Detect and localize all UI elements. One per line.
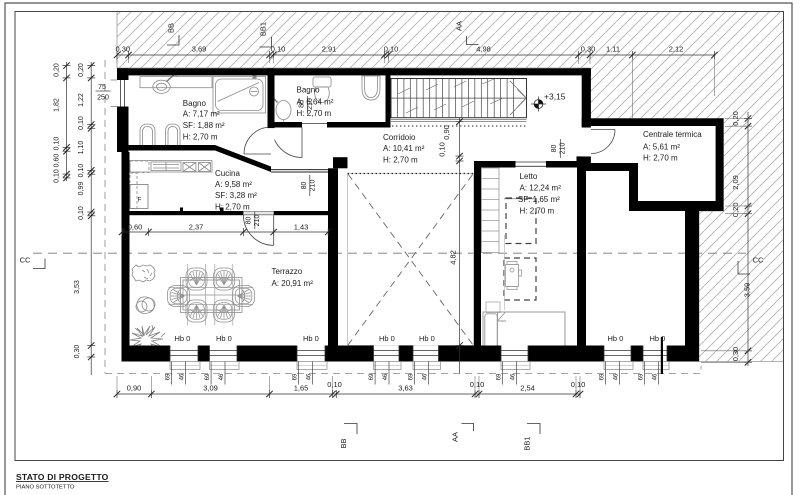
svg-text:Hb 0: Hb 0 <box>608 334 624 343</box>
svg-text:0,30: 0,30 <box>731 347 740 362</box>
svg-text:AA: AA <box>455 21 464 31</box>
svg-text:F: F <box>138 197 142 204</box>
svg-text:80: 80 <box>551 145 558 153</box>
svg-text:0,30: 0,30 <box>115 45 130 54</box>
svg-text:3,63: 3,63 <box>398 384 413 393</box>
svg-text:Cucina: Cucina <box>215 169 240 178</box>
svg-text:0,20: 0,20 <box>78 63 85 77</box>
svg-text:3,69: 3,69 <box>192 45 207 54</box>
svg-text:3,53: 3,53 <box>74 280 81 294</box>
svg-text:0,90: 0,90 <box>442 125 451 140</box>
svg-text:CC: CC <box>20 256 31 265</box>
svg-text:Corridoio: Corridoio <box>383 133 416 142</box>
svg-text:H: 2,70 m: H: 2,70 m <box>383 156 418 165</box>
svg-text:46: 46 <box>307 373 313 380</box>
svg-text:69: 69 <box>600 373 606 380</box>
svg-text:H: 2,70 m: H: 2,70 m <box>520 207 555 216</box>
svg-text:+3,15: +3,15 <box>544 92 566 102</box>
svg-text:69: 69 <box>293 373 299 380</box>
svg-text:3,09: 3,09 <box>203 384 218 393</box>
svg-text:250: 250 <box>97 95 109 102</box>
svg-text:Hb 0: Hb 0 <box>216 334 232 343</box>
svg-text:0,10: 0,10 <box>571 380 586 389</box>
svg-text:0,10: 0,10 <box>438 142 447 157</box>
svg-text:H: 2,70 m: H: 2,70 m <box>183 133 218 142</box>
svg-text:69: 69 <box>205 373 211 380</box>
svg-text:69: 69 <box>369 373 375 380</box>
svg-text:0,10: 0,10 <box>54 137 61 151</box>
svg-text:69: 69 <box>166 373 172 380</box>
svg-text:SF: 3,28 m²: SF: 3,28 m² <box>215 191 257 200</box>
svg-text:2,54: 2,54 <box>520 384 535 393</box>
svg-text:A: 9,58 m²: A: 9,58 m² <box>215 180 252 189</box>
svg-text:SF: 1,88 m²: SF: 1,88 m² <box>183 121 225 130</box>
svg-text:0,60: 0,60 <box>128 223 143 232</box>
svg-text:Hb 0: Hb 0 <box>650 334 666 343</box>
svg-text:46: 46 <box>614 373 620 380</box>
svg-text:69: 69 <box>497 373 503 380</box>
svg-text:BB1: BB1 <box>523 436 532 450</box>
svg-text:2,09: 2,09 <box>731 175 740 190</box>
svg-text:4,98: 4,98 <box>476 45 491 54</box>
svg-text:Bagno: Bagno <box>183 99 207 108</box>
svg-text:1,43: 1,43 <box>294 223 309 232</box>
svg-text:AA: AA <box>451 432 460 442</box>
svg-text:0,30: 0,30 <box>581 45 596 54</box>
svg-text:46: 46 <box>383 373 389 380</box>
svg-text:H: 2,70 m: H: 2,70 m <box>297 109 332 118</box>
svg-text:46: 46 <box>511 373 517 380</box>
svg-text:0,10: 0,10 <box>78 206 85 220</box>
svg-text:A: 12,24 m²: A: 12,24 m² <box>520 184 562 193</box>
svg-text:STATO DI PROGETTO: STATO DI PROGETTO <box>16 472 109 482</box>
svg-text:0,20: 0,20 <box>731 202 740 217</box>
svg-text:210: 210 <box>310 180 317 192</box>
svg-text:75: 75 <box>98 84 106 91</box>
svg-text:A: 5,61 m²: A: 5,61 m² <box>643 143 680 152</box>
svg-text:46: 46 <box>219 373 225 380</box>
svg-text:0,10: 0,10 <box>384 45 399 54</box>
svg-text:0,99: 0,99 <box>78 182 85 196</box>
svg-text:69: 69 <box>409 373 415 380</box>
svg-text:3,59: 3,59 <box>743 283 752 298</box>
svg-text:Hb 0: Hb 0 <box>175 334 191 343</box>
svg-text:0,10: 0,10 <box>327 380 342 389</box>
svg-text:Terrazzo: Terrazzo <box>272 267 303 276</box>
svg-text:BB1: BB1 <box>259 22 268 36</box>
svg-text:Centrale termica: Centrale termica <box>643 130 702 139</box>
svg-text:A: 7,17 m²: A: 7,17 m² <box>183 110 220 119</box>
svg-text:PIANO SOTTOTETTO: PIANO SOTTOTETTO <box>16 485 75 491</box>
svg-text:Letto: Letto <box>520 172 538 181</box>
svg-text:1,65: 1,65 <box>294 384 309 393</box>
svg-text:1,82: 1,82 <box>54 98 61 112</box>
svg-text:0,90: 0,90 <box>127 384 142 393</box>
svg-text:1,22: 1,22 <box>78 93 85 107</box>
svg-text:46: 46 <box>653 373 659 380</box>
svg-text:Bagno: Bagno <box>297 86 321 95</box>
svg-text:A: 20,91 m²: A: 20,91 m² <box>272 279 314 288</box>
svg-text:0,10: 0,10 <box>54 169 61 183</box>
svg-text:46: 46 <box>180 373 186 380</box>
svg-text:A: 10,41 m²: A: 10,41 m² <box>383 144 425 153</box>
svg-text:0,10: 0,10 <box>470 380 485 389</box>
svg-text:46: 46 <box>423 373 429 380</box>
svg-text:80: 80 <box>301 182 308 190</box>
svg-text:0,60: 0,60 <box>54 154 61 168</box>
svg-text:0,10: 0,10 <box>78 164 85 178</box>
svg-text:Hb 0: Hb 0 <box>379 334 395 343</box>
svg-text:2,37: 2,37 <box>189 223 204 232</box>
svg-text:0,20: 0,20 <box>54 63 61 77</box>
svg-text:CC: CC <box>753 256 764 265</box>
svg-text:H: 2,70 m: H: 2,70 m <box>215 203 250 212</box>
svg-text:BB: BB <box>167 23 176 33</box>
svg-text:2,91: 2,91 <box>322 45 337 54</box>
svg-text:A: 6,64 m²: A: 6,64 m² <box>297 98 334 107</box>
svg-text:Hb 0: Hb 0 <box>419 334 435 343</box>
svg-text:SF: 1,65 m²: SF: 1,65 m² <box>518 195 560 204</box>
svg-text:1,11: 1,11 <box>606 45 620 54</box>
svg-text:80: 80 <box>246 217 253 225</box>
svg-text:0,10: 0,10 <box>78 116 85 130</box>
svg-text:H: 2,70 m: H: 2,70 m <box>643 154 678 163</box>
svg-text:0,10: 0,10 <box>271 45 286 54</box>
svg-text:1,10: 1,10 <box>78 141 85 155</box>
svg-text:BB: BB <box>339 438 348 448</box>
svg-text:69: 69 <box>639 373 645 380</box>
svg-text:2,12: 2,12 <box>669 45 684 54</box>
svg-text:4,82: 4,82 <box>449 250 458 265</box>
svg-text:0,30: 0,30 <box>74 345 81 359</box>
svg-text:Hb 0: Hb 0 <box>303 334 319 343</box>
